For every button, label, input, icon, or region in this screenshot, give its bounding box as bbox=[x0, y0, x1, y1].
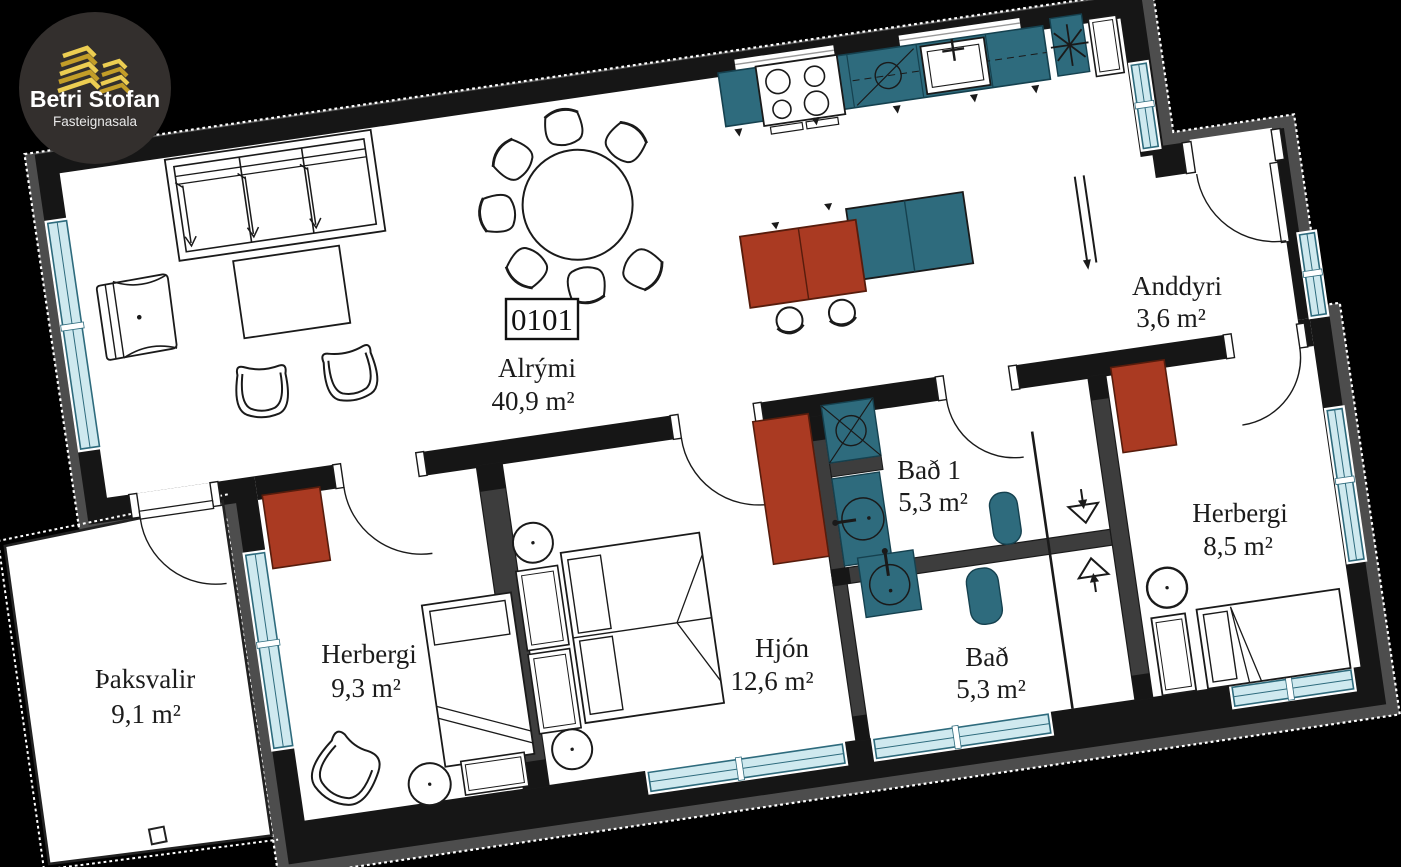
svg-text:Betri Stofan: Betri Stofan bbox=[30, 86, 160, 112]
svg-text:9,1 m²: 9,1 m² bbox=[111, 699, 181, 729]
svg-text:3,6 m²: 3,6 m² bbox=[1136, 303, 1206, 333]
svg-text:12,6 m²: 12,6 m² bbox=[730, 666, 813, 696]
svg-text:Alrými: Alrými bbox=[498, 353, 576, 383]
svg-text:Bað 1: Bað 1 bbox=[897, 455, 961, 485]
svg-text:Herbergi: Herbergi bbox=[321, 639, 416, 669]
svg-text:8,5 m²: 8,5 m² bbox=[1203, 531, 1273, 561]
svg-text:5,3 m²: 5,3 m² bbox=[956, 674, 1026, 704]
svg-text:5,3 m²: 5,3 m² bbox=[898, 487, 968, 517]
svg-text:0101: 0101 bbox=[511, 302, 573, 337]
svg-text:9,3 m²: 9,3 m² bbox=[331, 673, 401, 703]
svg-text:40,9 m²: 40,9 m² bbox=[491, 386, 574, 416]
svg-text:Fasteignasala: Fasteignasala bbox=[53, 114, 138, 129]
svg-text:Herbergi: Herbergi bbox=[1192, 498, 1287, 528]
svg-text:Anddyri: Anddyri bbox=[1132, 271, 1222, 301]
svg-text:Hjón: Hjón bbox=[755, 633, 810, 663]
svg-text:Þaksvalir: Þaksvalir bbox=[95, 664, 196, 694]
svg-text:Bað: Bað bbox=[965, 642, 1009, 672]
